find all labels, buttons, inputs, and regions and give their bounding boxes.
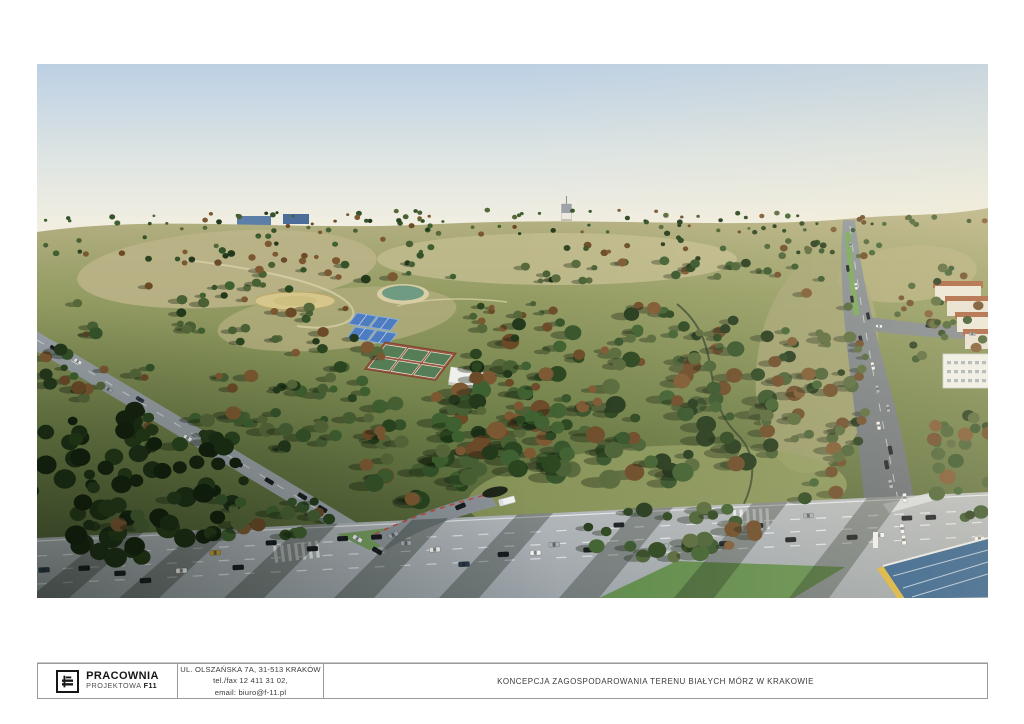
presentation-board: PRACOWNIA PROJEKTOWAF11 UL. OLSZAŃSKA 7A… xyxy=(0,0,1024,724)
project-title: KONCEPCJA ZAGOSPODAROWANIA TERENU BIAŁYC… xyxy=(497,677,814,686)
aerial-render-image xyxy=(37,64,988,598)
address-line3: email: biuro@f-11.pl xyxy=(215,687,287,698)
firm-logo-cell: PRACOWNIA PROJEKTOWAF11 xyxy=(38,664,177,698)
address-line2: tel./fax 12 411 31 02, xyxy=(213,675,288,686)
title-block: PRACOWNIA PROJEKTOWAF11 UL. OLSZAŃSKA 7A… xyxy=(37,663,988,699)
firm-address-cell: UL. OLSZAŃSKA 7A, 31-513 KRAKÓW tel./fax… xyxy=(177,664,323,698)
shadow-vignette xyxy=(37,64,988,598)
firm-name-line2: PROJEKTOWAF11 xyxy=(86,682,159,691)
f11-monogram-icon xyxy=(56,670,79,693)
project-title-cell: KONCEPCJA ZAGOSPODAROWANIA TERENU BIAŁYC… xyxy=(323,664,987,698)
aerial-render-svg xyxy=(37,64,988,598)
firm-name: PRACOWNIA PROJEKTOWAF11 xyxy=(86,671,159,691)
address-line1: UL. OLSZAŃSKA 7A, 31-513 KRAKÓW xyxy=(180,664,320,675)
